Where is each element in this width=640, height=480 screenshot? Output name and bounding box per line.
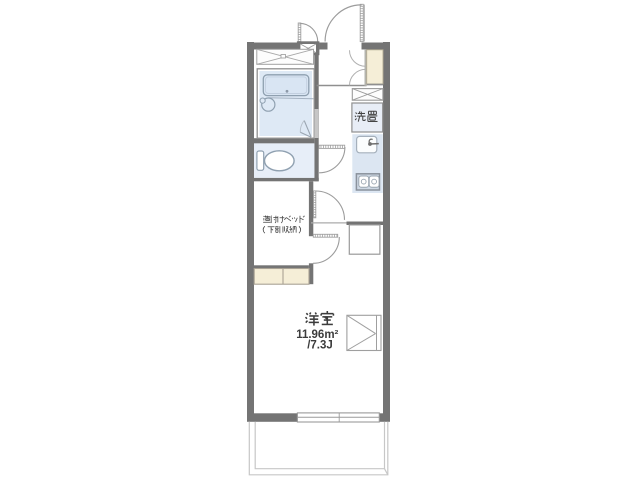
svg-text:/7.3J: /7.3J [307,339,333,351]
